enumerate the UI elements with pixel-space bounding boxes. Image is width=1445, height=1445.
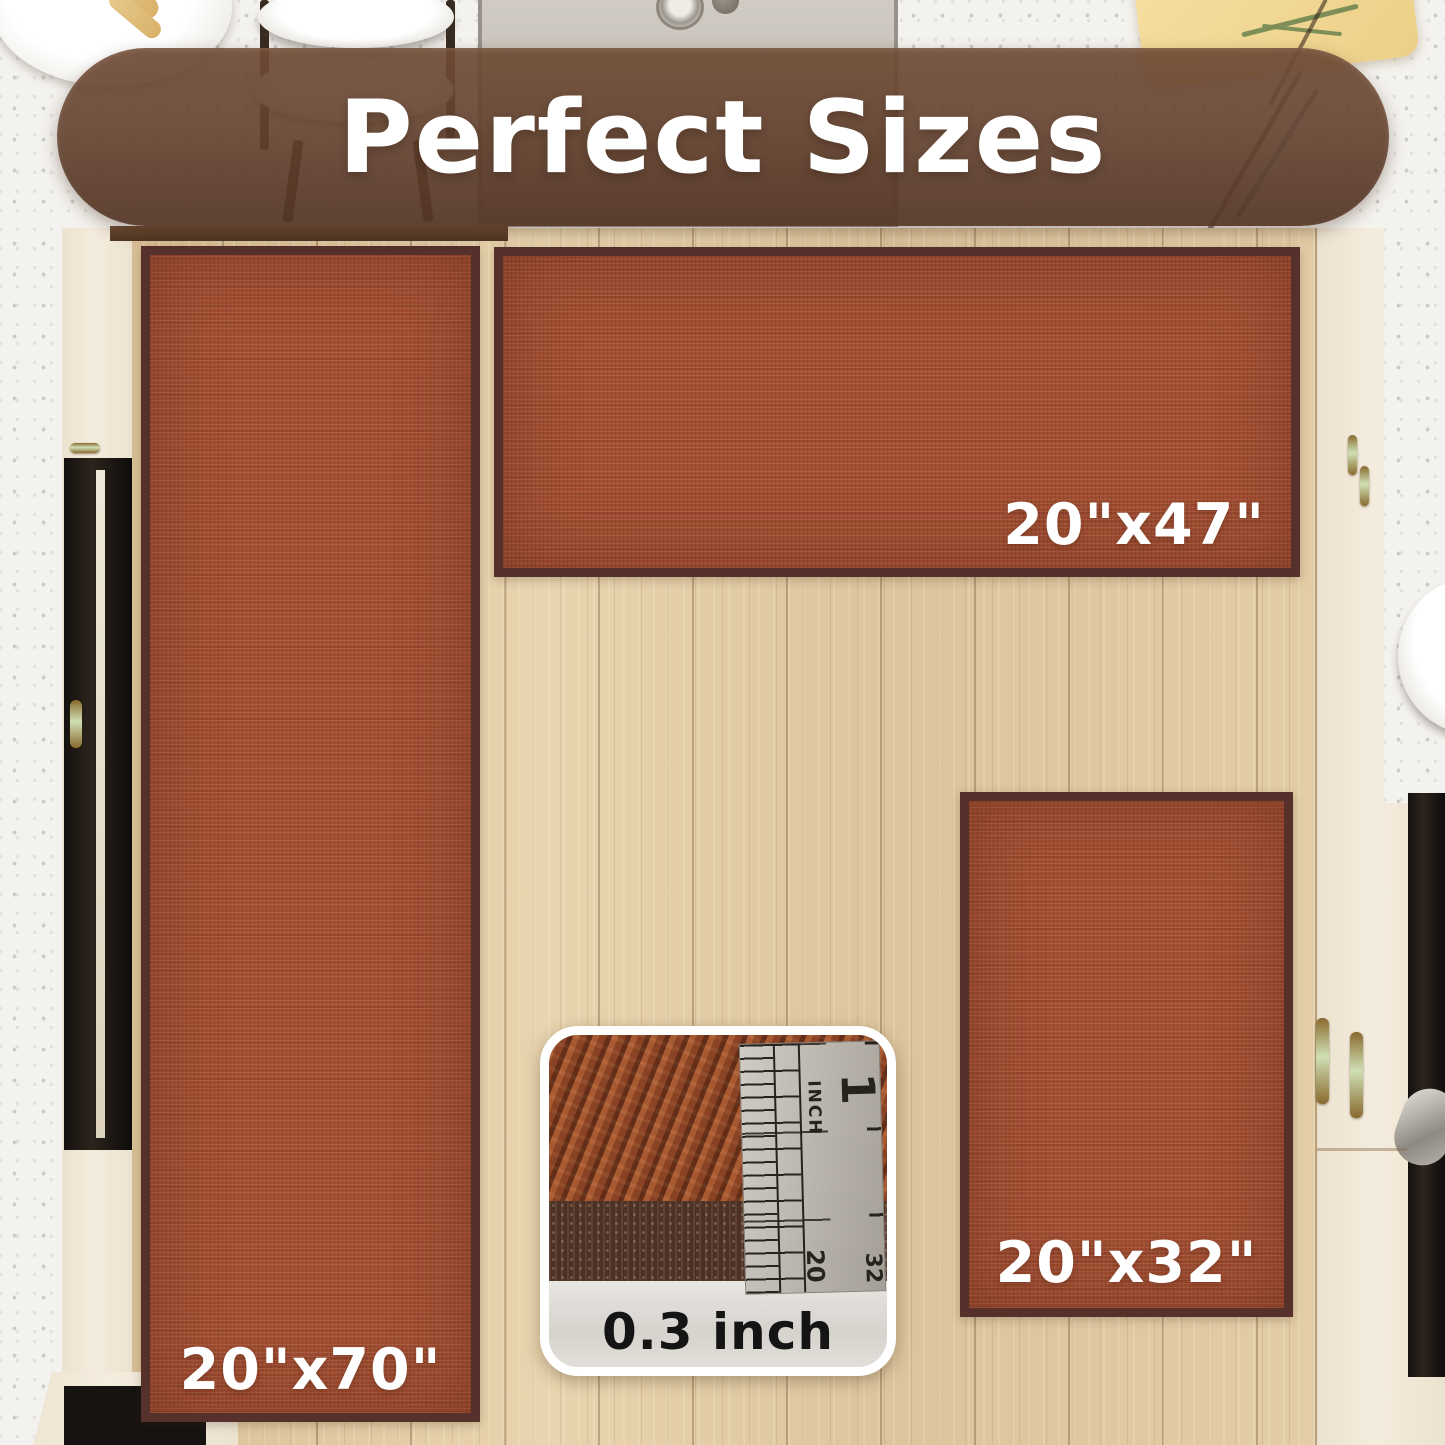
- wide-rug-size-label: 20"x47": [1003, 492, 1265, 558]
- runner-rug-20x70: 20"x70": [141, 246, 480, 1422]
- cabinet-handle: [1360, 466, 1369, 506]
- left-counter-edge: [0, 228, 64, 1445]
- thickness-inset: 1 INCH 20 32 0.3 inch: [540, 1026, 896, 1376]
- cabinet-handle: [1316, 1018, 1329, 1104]
- wide-rug-20x47: 20"x47": [494, 247, 1300, 577]
- ruler-mark-32: 32: [860, 1252, 886, 1283]
- thickness-label: 0.3 inch: [549, 1303, 887, 1361]
- title-banner: Perfect Sizes: [57, 48, 1389, 226]
- ruler: 1 INCH 20 32: [738, 1040, 885, 1295]
- ruler-mark-20: 20: [800, 1248, 829, 1282]
- product-image: 20"x70" 20"x47" 20"x32" 1 INCH 20 32 0.3…: [0, 0, 1445, 1445]
- runner-rug-size-label: 20"x70": [150, 1337, 471, 1403]
- oven-door-edge: [96, 470, 105, 1138]
- small-rug-size-label: 20"x32": [969, 1230, 1284, 1296]
- cabinet-hinge: [70, 443, 100, 453]
- page-title: Perfect Sizes: [57, 48, 1389, 226]
- cabinet-seam: [1317, 1148, 1407, 1151]
- oven-handle: [70, 700, 82, 748]
- right-appliance: [1408, 793, 1445, 1377]
- ruler-unit-inch: INCH: [803, 1079, 824, 1135]
- countertop-edge: [110, 226, 508, 241]
- cabinet-handle: [1350, 1032, 1363, 1118]
- small-rug-20x32: 20"x32": [960, 792, 1293, 1317]
- ruler-number-1: 1: [830, 1072, 885, 1105]
- cabinet-handle: [1348, 435, 1357, 475]
